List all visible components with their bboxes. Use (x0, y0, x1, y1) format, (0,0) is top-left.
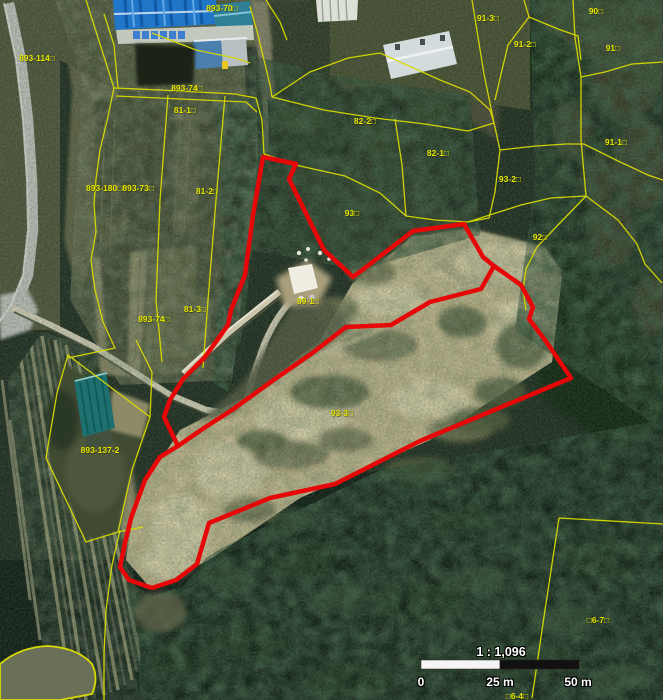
svg-text:81-3□: 81-3□ (184, 304, 206, 314)
svg-text:91-2□: 91-2□ (514, 39, 536, 49)
svg-text:93-3□: 93-3□ (331, 408, 353, 418)
svg-text:893-70□: 893-70□ (206, 3, 238, 13)
svg-text:81-2□: 81-2□ (196, 186, 218, 196)
svg-text:□6-4□: □6-4□ (506, 691, 529, 700)
svg-text:90□: 90□ (589, 6, 604, 16)
svg-text:93-2□: 93-2□ (499, 174, 521, 184)
svg-text:893-74□: 893-74□ (138, 314, 170, 324)
svg-text:25 m: 25 m (486, 675, 513, 689)
svg-text:82-2□: 82-2□ (354, 116, 376, 126)
svg-text:50 m: 50 m (564, 675, 591, 689)
svg-text:893-137-2: 893-137-2 (81, 445, 120, 455)
svg-text:82-1□: 82-1□ (427, 148, 449, 158)
svg-text:0: 0 (418, 675, 425, 689)
svg-text:893-114□: 893-114□ (19, 53, 55, 63)
svg-text:893-180□893-73□: 893-180□893-73□ (86, 183, 154, 193)
svg-text:□6-7□: □6-7□ (587, 615, 610, 625)
svg-text:93□: 93□ (345, 208, 360, 218)
svg-text:91□: 91□ (606, 43, 621, 53)
svg-text:89-1□: 89-1□ (297, 296, 319, 306)
svg-text:81-1□: 81-1□ (174, 105, 196, 115)
svg-text:91-1□: 91-1□ (605, 137, 627, 147)
svg-text:1 : 1,096: 1 : 1,096 (476, 645, 525, 659)
svg-text:92□: 92□ (533, 232, 548, 242)
svg-text:91-3□: 91-3□ (477, 13, 499, 23)
svg-text:893-74□: 893-74□ (171, 83, 203, 93)
